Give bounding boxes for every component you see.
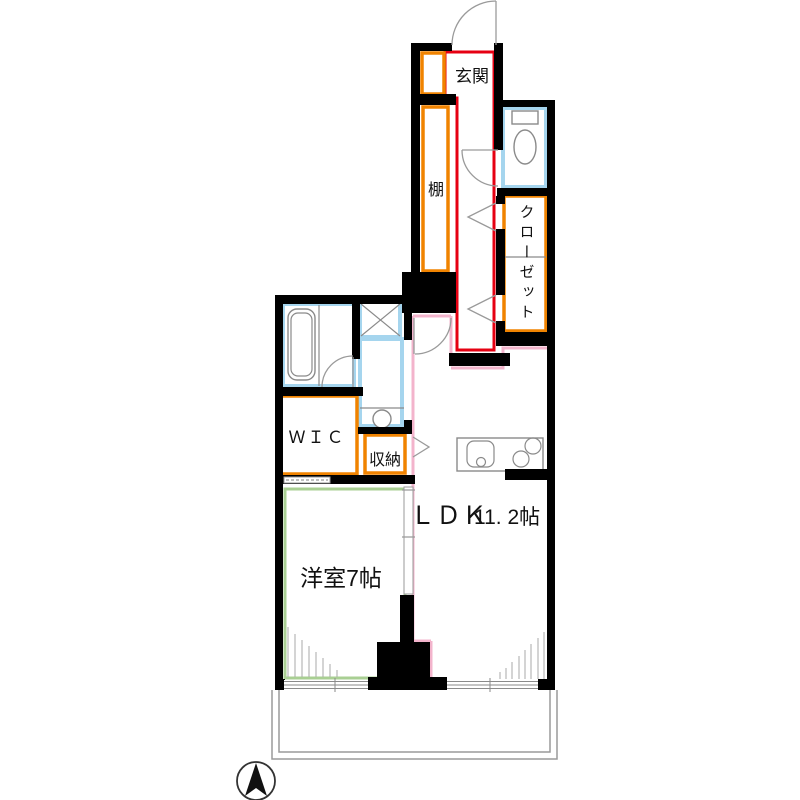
wic-sliding-door bbox=[284, 477, 330, 483]
balcony bbox=[272, 690, 557, 759]
ldk-window-hatch bbox=[500, 632, 544, 679]
entrance-door-arc bbox=[452, 1, 496, 45]
bedroom-label: 洋室7帖 bbox=[300, 565, 382, 591]
bedroom-window bbox=[284, 678, 368, 692]
floor-plan: 玄関 棚 クローゼット ＷＩＣ 収納 ＬＤＫ 11. 2帖 洋室7帖 bbox=[0, 0, 800, 800]
kitchen-counter bbox=[457, 438, 543, 471]
storage-folding-door bbox=[413, 437, 429, 457]
entrance-label: 玄関 bbox=[455, 67, 489, 86]
closet-label: クローゼット bbox=[518, 204, 535, 324]
ldk-outline bbox=[413, 316, 549, 682]
toilet-icon bbox=[512, 111, 538, 164]
storage-label: 収納 bbox=[369, 451, 401, 469]
ldk-size-label: 11. 2帖 bbox=[474, 506, 540, 529]
wic-label: ＷＩＣ bbox=[289, 428, 346, 447]
ldk-window bbox=[447, 678, 538, 692]
north-arrow-icon bbox=[237, 762, 275, 800]
shelf-label: 棚 bbox=[428, 181, 444, 199]
floor-plan-svg: 玄関 棚 クローゼット ＷＩＣ 収納 ＬＤＫ 11. 2帖 洋室7帖 bbox=[0, 0, 800, 800]
ldk-door-arc bbox=[414, 318, 451, 354]
bathtub-icon bbox=[288, 305, 319, 386]
shoe-shelf-outline bbox=[422, 53, 444, 94]
